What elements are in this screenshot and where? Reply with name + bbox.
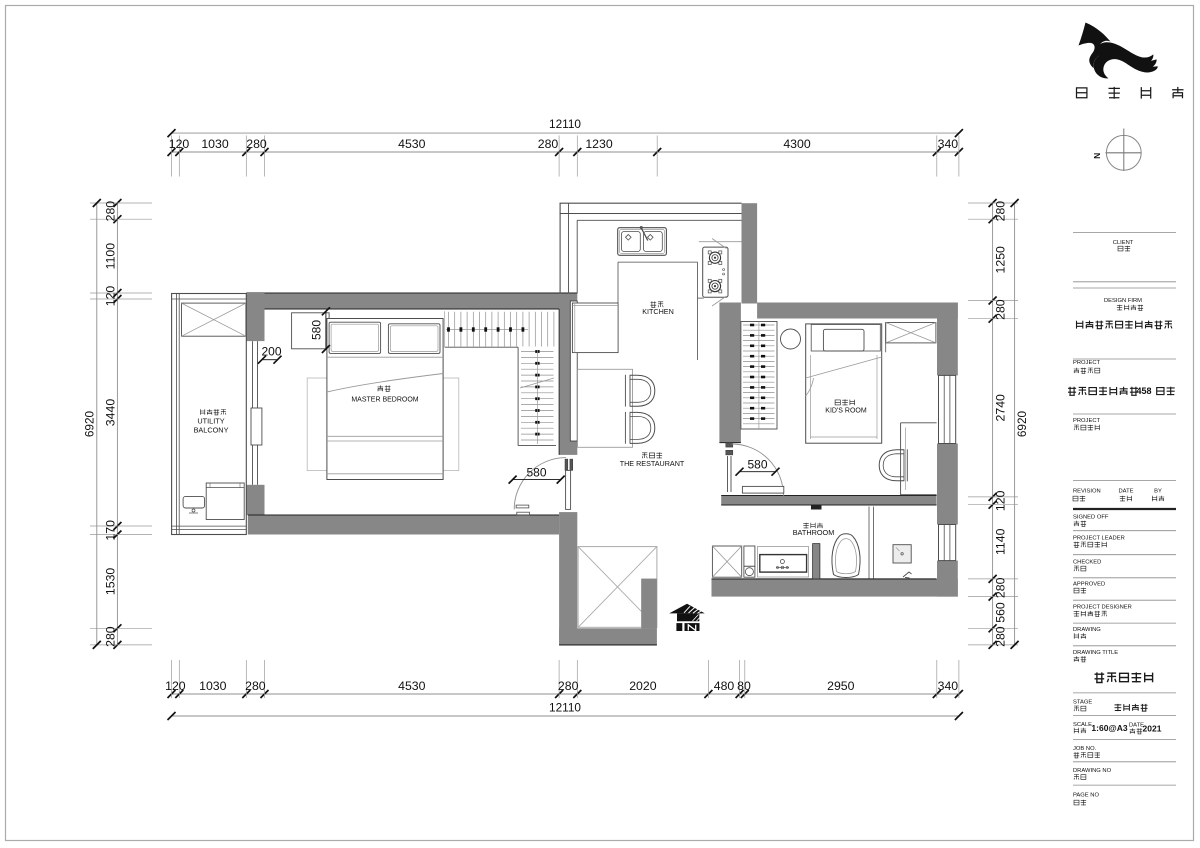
svg-text:N: N: [1092, 153, 1102, 159]
svg-text:280: 280: [246, 137, 267, 151]
svg-text:KID'S ROOM: KID'S ROOM: [825, 408, 867, 415]
svg-text:120: 120: [104, 286, 118, 307]
svg-text:2021: 2021: [1143, 724, 1162, 734]
svg-text:1:60@A3: 1:60@A3: [1091, 723, 1127, 733]
svg-text:580: 580: [747, 458, 767, 472]
svg-text:1230: 1230: [585, 137, 613, 151]
svg-text:120: 120: [994, 490, 1008, 511]
svg-text:4530: 4530: [398, 679, 426, 693]
svg-text:2020: 2020: [629, 679, 657, 693]
svg-text:BY: BY: [1154, 489, 1162, 495]
svg-text:6920: 6920: [83, 410, 97, 437]
svg-text:120: 120: [169, 137, 190, 151]
svg-text:170: 170: [104, 520, 118, 541]
svg-text:PROJECT LEADER: PROJECT LEADER: [1073, 535, 1125, 541]
svg-text:PAGE NO: PAGE NO: [1073, 793, 1099, 799]
svg-text:REVISION: REVISION: [1073, 489, 1101, 495]
svg-text:280: 280: [558, 679, 579, 693]
svg-text:280: 280: [104, 626, 118, 647]
svg-text:KITCHEN: KITCHEN: [642, 307, 674, 316]
svg-text:APPROVED: APPROVED: [1073, 582, 1105, 588]
svg-text:THE RESTAURANT: THE RESTAURANT: [620, 459, 685, 468]
svg-text:1530: 1530: [104, 568, 118, 596]
svg-text:SIGNED OFF: SIGNED OFF: [1073, 515, 1109, 521]
svg-text:12110: 12110: [549, 117, 581, 131]
svg-text:2950: 2950: [827, 679, 855, 693]
svg-text:560: 560: [994, 602, 1008, 623]
svg-text:PROJECT DESIGNER: PROJECT DESIGNER: [1073, 605, 1132, 611]
svg-text:BATHROOM: BATHROOM: [793, 528, 835, 537]
svg-text:280: 280: [538, 137, 559, 151]
svg-text:1140: 1140: [994, 528, 1008, 555]
svg-text:BALCONY: BALCONY: [194, 426, 229, 435]
svg-text:280: 280: [994, 626, 1008, 647]
svg-text:STAGE: STAGE: [1073, 700, 1092, 706]
svg-text:340: 340: [938, 679, 959, 693]
svg-text:PROJECT: PROJECT: [1073, 418, 1101, 424]
svg-text:340: 340: [938, 137, 959, 151]
svg-text:580: 580: [310, 320, 324, 340]
svg-text:3440: 3440: [104, 399, 118, 427]
svg-text:CLIENT: CLIENT: [1113, 240, 1134, 246]
svg-text:80: 80: [737, 679, 751, 693]
svg-text:1030: 1030: [201, 137, 229, 151]
svg-text:1100: 1100: [104, 243, 118, 270]
svg-text:MASTER BEDROOM: MASTER BEDROOM: [351, 397, 418, 404]
svg-text:DRAWING: DRAWING: [1073, 627, 1101, 633]
svg-text:DATE: DATE: [1118, 489, 1133, 495]
svg-text:JOB NO.: JOB NO.: [1073, 746, 1097, 752]
svg-text:2740: 2740: [994, 394, 1008, 422]
svg-text:DRAWING NO: DRAWING NO: [1073, 768, 1112, 774]
svg-text:CHECKED: CHECKED: [1073, 559, 1101, 565]
svg-text:120: 120: [165, 679, 186, 693]
svg-text:1030: 1030: [199, 679, 227, 693]
svg-text:280: 280: [104, 201, 118, 222]
svg-text:280: 280: [994, 299, 1008, 320]
svg-text:480: 480: [714, 679, 735, 693]
svg-text:280: 280: [245, 679, 266, 693]
svg-text:1250: 1250: [994, 246, 1008, 274]
svg-text:12110: 12110: [549, 701, 581, 715]
svg-text:280: 280: [994, 577, 1008, 598]
svg-text:DESIGN FIRM: DESIGN FIRM: [1104, 298, 1142, 304]
svg-text:PROJECT: PROJECT: [1073, 360, 1101, 366]
svg-text:DRAWING TITLE: DRAWING TITLE: [1073, 650, 1118, 656]
svg-text:4300: 4300: [783, 137, 811, 151]
svg-text:6920: 6920: [1015, 410, 1029, 437]
svg-text:UTILITY: UTILITY: [197, 417, 224, 426]
svg-text:458: 458: [1136, 386, 1151, 396]
svg-text:280: 280: [994, 201, 1008, 222]
svg-text:4530: 4530: [398, 137, 426, 151]
svg-text:SCALE: SCALE: [1073, 722, 1092, 728]
svg-text:580: 580: [526, 466, 546, 480]
